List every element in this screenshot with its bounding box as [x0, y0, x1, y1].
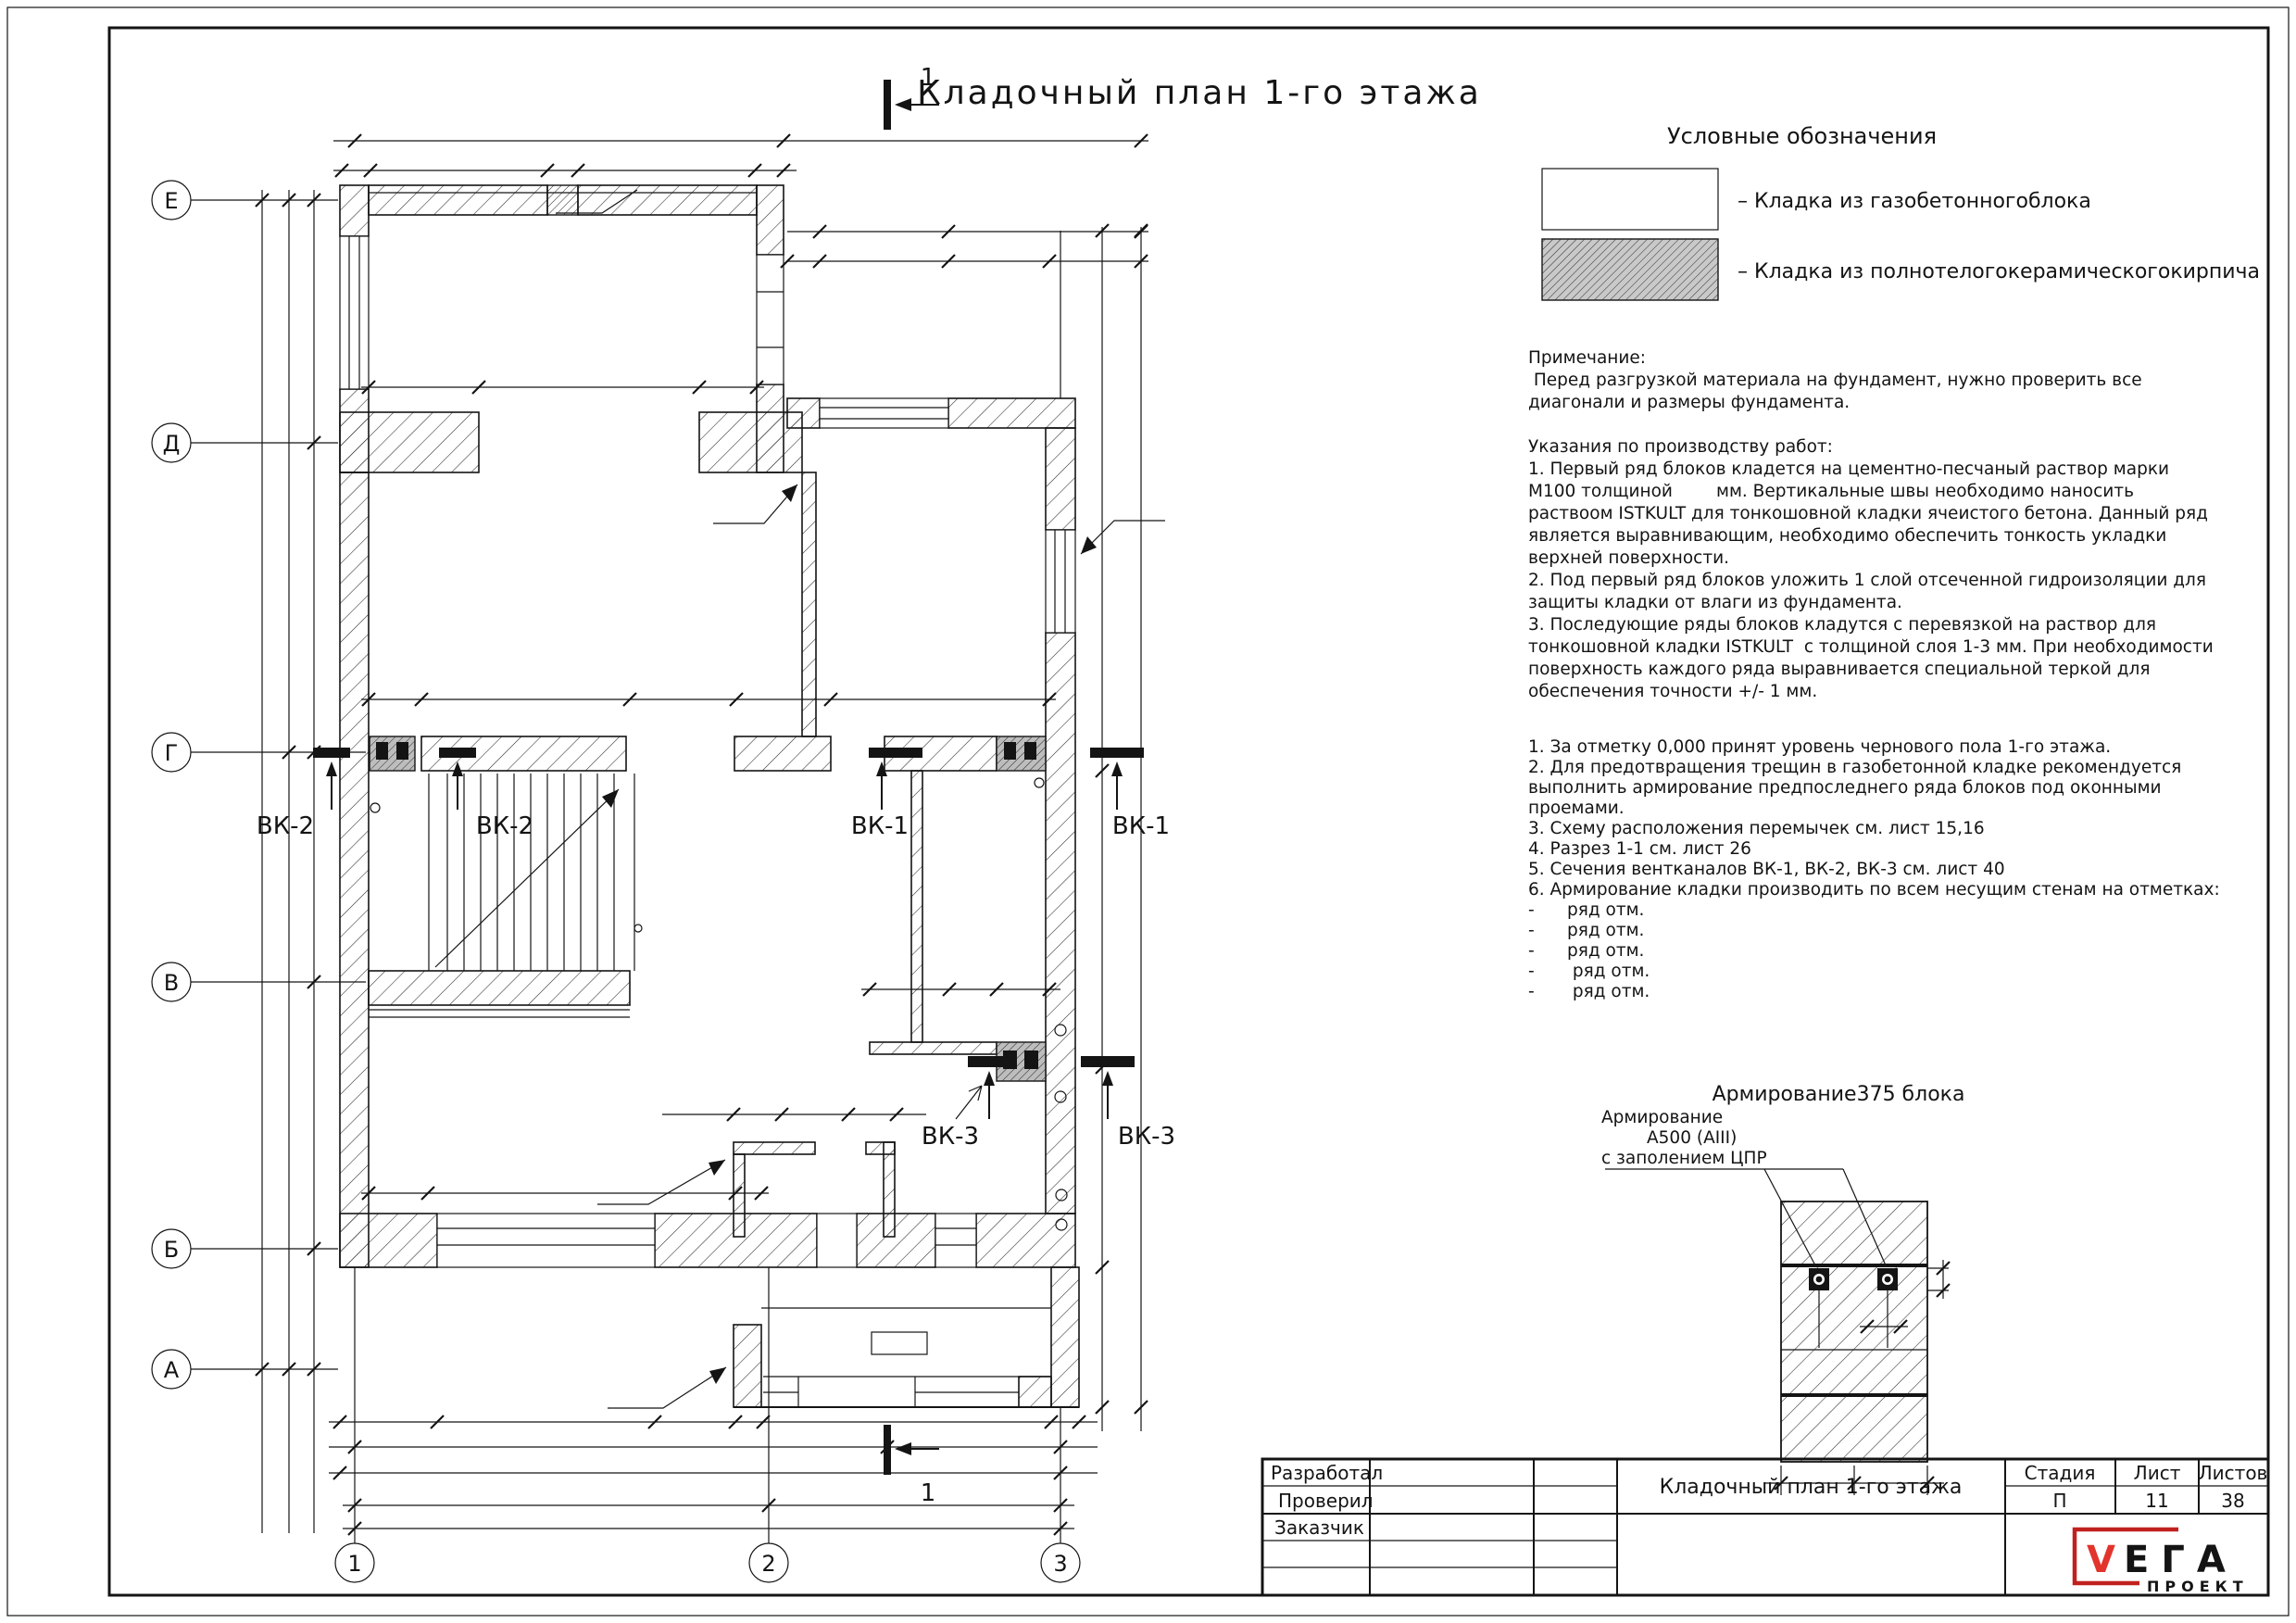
- axis-label-D: Д: [163, 431, 181, 457]
- floor-plan: ВК-2 ВК-2 ВК-1 ВК-1 ВК-3 ВК-3: [257, 185, 1175, 1408]
- legend-swatch-gas-concrete: [1542, 169, 1718, 230]
- general-note-line: - ряд отм.: [1528, 941, 1644, 961]
- note-line: Примечание:: [1528, 348, 1646, 368]
- vk3-label-2: ВК-3: [1118, 1123, 1175, 1151]
- reinforcement-detail: Армирование375 блока Армирование А500 (А…: [1601, 1083, 1964, 1495]
- detail-callout-line3: с заполением ЦПР: [1601, 1149, 1767, 1168]
- titleblock-doc-title: Кладочный план 1-го этажа: [1660, 1476, 1963, 1499]
- general-note-line: - ряд отм.: [1528, 900, 1644, 920]
- general-note-line: 6. Армирование кладки производить по все…: [1528, 880, 2220, 900]
- note-line: тонкошовной кладки ISTKULT с толщиной сл…: [1528, 637, 2214, 657]
- title-block: Разработал Проверил Заказчик Кладочный п…: [1262, 1459, 2268, 1595]
- general-note-line: - ряд отм.: [1528, 982, 1650, 1001]
- note-line: М100 толщиной мм. Вертикальные швы необх…: [1528, 482, 2134, 501]
- axis-label-2: 2: [761, 1551, 775, 1577]
- axis-label-E: Е: [164, 188, 178, 214]
- note-line: Указания по производству работ:: [1528, 437, 1833, 457]
- vk2-label-2: ВК-2: [476, 812, 533, 840]
- note-line: 2. Под первый ряд блоков уложить 1 слой …: [1528, 571, 2206, 590]
- axis-grid: Е Д Г В Б А 1 2 3: [152, 181, 1080, 1582]
- porch-window: [872, 1332, 927, 1354]
- stage-label: Стадия: [2025, 1462, 2096, 1484]
- vk2-label-1: ВК-2: [257, 812, 314, 840]
- general-note-line: 3. Схему расположения перемычек см. лист…: [1528, 819, 1985, 838]
- dimension-ticks: [256, 134, 1148, 1535]
- logo-letter-v: V: [2087, 1539, 2115, 1581]
- vega-logo: V ЕГА ПРОЕКТ: [2075, 1529, 2249, 1595]
- note-line: 3. Последующие ряды блоков кладутся с пе…: [1528, 615, 2156, 635]
- masonry-plan-svg: Кладочный план 1-го этажа 1: [0, 0, 2296, 1623]
- axis-label-V: В: [164, 970, 179, 996]
- axis-label-1: 1: [347, 1551, 361, 1577]
- note-line: защиты кладки от влаги из фундамента.: [1528, 593, 1902, 612]
- detail-block: [1781, 1202, 1927, 1462]
- page-title-group: Кладочный план 1-го этажа 1: [884, 64, 1482, 130]
- dimension-lines: [262, 141, 1148, 1533]
- detail-title: Армирование375 блока: [1713, 1083, 1965, 1106]
- general-note-line: проемами.: [1528, 799, 1625, 818]
- drawing-sheet: Кладочный план 1-го этажа 1: [0, 0, 2296, 1623]
- walls-brick: [547, 185, 578, 215]
- section-label-top: 1: [921, 64, 936, 92]
- stage-value: П: [2052, 1490, 2066, 1512]
- section-label-bottom: 1: [921, 1479, 936, 1507]
- legend-heading: Условные обозначения: [1667, 123, 1937, 149]
- note-line: раствоом ISTKULT для тонкошовной кладки …: [1528, 504, 2208, 523]
- staircase: [429, 774, 642, 971]
- section-mark-bottom: [884, 1425, 891, 1475]
- vent-block-vk2: [370, 736, 415, 771]
- note-line: диагонали и размеры фундамента.: [1528, 393, 1850, 412]
- detail-callout-line1: Армирование: [1601, 1108, 1723, 1127]
- general-note-line: - ряд отм.: [1528, 962, 1650, 981]
- legend-item-gas-concrete: – Кладка из газобетонногоблока: [1738, 190, 2091, 213]
- note-line: является выравнивающим, необходимо обесп…: [1528, 526, 2166, 546]
- page-title: Кладочный план 1-го этажа: [917, 74, 1482, 112]
- general-note-line: 5. Сечения вентканалов ВК-1, ВК-2, ВК-3 …: [1528, 860, 2005, 879]
- sheets-total: 38: [2221, 1490, 2244, 1512]
- axis-label-3: 3: [1053, 1551, 1067, 1577]
- legend: Условные обозначения – Кладка из газобет…: [1542, 123, 2260, 300]
- axis-row-bubbles: Е Д Г В Б А: [152, 181, 366, 1389]
- note-line: 1. Первый ряд блоков кладется на цементн…: [1528, 459, 2169, 479]
- titleblock-developed-label: Разработал: [1271, 1462, 1383, 1484]
- note-line: поверхность каждого ряда выравнивается с…: [1528, 660, 2151, 679]
- notes-block: Примечание: Перед разгрузкой материала н…: [1528, 348, 2214, 701]
- general-notes: 1. За отметку 0,000 принят уровень черно…: [1528, 737, 2220, 1001]
- detail-callout-line2: А500 (АIII): [1647, 1128, 1737, 1148]
- axis-label-B: Б: [164, 1237, 179, 1263]
- vent-block-vk1: [997, 736, 1046, 787]
- vk1-label-1: ВК-1: [851, 812, 909, 840]
- vk3-label-1: ВК-3: [922, 1123, 979, 1151]
- general-note-line: выполнить армирование предпоследнего ряд…: [1528, 778, 2162, 798]
- general-note-line: 2. Для предотвращения трещин в газобетон…: [1528, 758, 2181, 777]
- sheet-label: Лист: [2134, 1462, 2181, 1484]
- section-mark-top: [884, 80, 891, 130]
- section-mark-bottom-group: 1: [884, 1425, 939, 1507]
- sheets-label: Листов: [2199, 1462, 2268, 1484]
- note-line: Перед разгрузкой материала на фундамент,…: [1528, 371, 2142, 390]
- note-line: обеспечения точности +/- 1 мм.: [1528, 682, 1817, 701]
- vent-marks: ВК-2 ВК-2 ВК-1 ВК-1 ВК-3 ВК-3: [257, 748, 1175, 1151]
- titleblock-checked-label: Проверил: [1278, 1490, 1374, 1512]
- axis-label-A: А: [164, 1357, 180, 1383]
- note-line: верхней поверхности.: [1528, 548, 1729, 568]
- titleblock-customer-label: Заказчик: [1274, 1516, 1364, 1539]
- general-note-line: 4. Разрез 1-1 см. лист 26: [1528, 839, 1751, 859]
- axis-label-G: Г: [165, 740, 179, 766]
- legend-item-brick: – Кладка из полнотелогокерамическогокирп…: [1738, 260, 2260, 283]
- sheet-number: 11: [2145, 1490, 2168, 1512]
- general-note-line: - ряд отм.: [1528, 921, 1644, 940]
- general-note-line: 1. За отметку 0,000 принят уровень черно…: [1528, 737, 2111, 757]
- logo-subtitle: ПРОЕКТ: [2147, 1578, 2249, 1595]
- logo-letters-ega: ЕГА: [2124, 1539, 2238, 1581]
